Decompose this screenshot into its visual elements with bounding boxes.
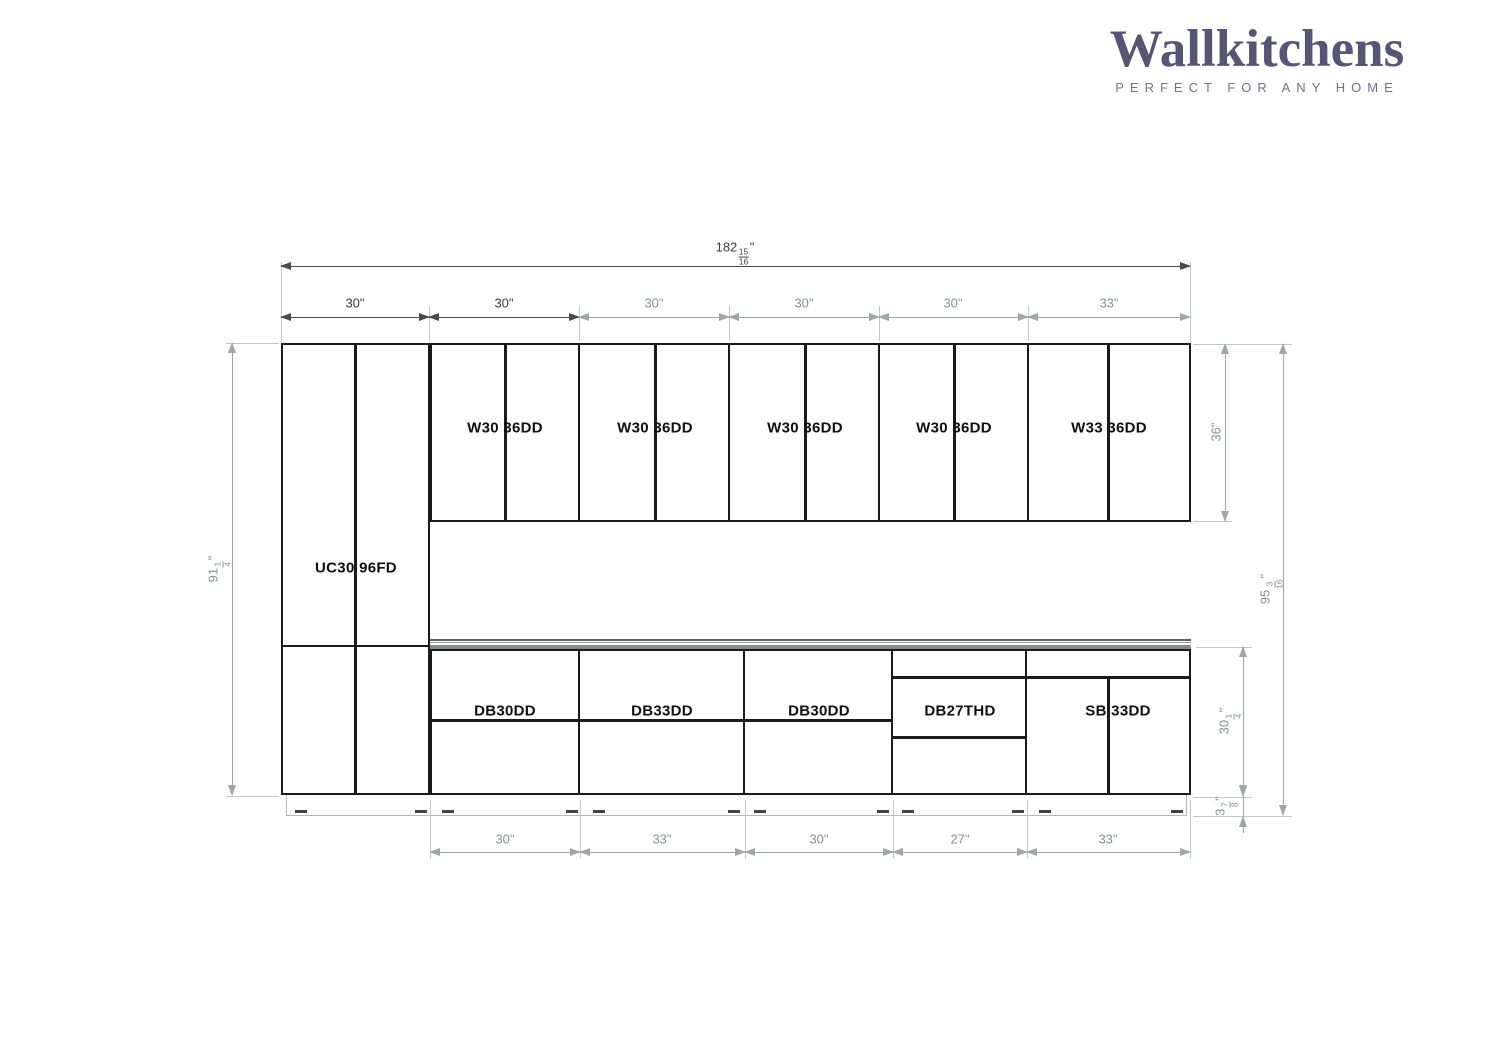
cabinet-label-base-1: DB30DD [474,703,536,720]
base-cabinet-db27thd [891,649,1027,795]
dim-label-wall-height: 36" [1209,422,1224,441]
dim-label-base-5: 33" [1098,832,1117,847]
brand-tagline: PERFECT FOR ANY HOME [1077,80,1437,95]
dim-line-wall-height [1225,344,1226,521]
dim-label-left-height: 9114" [206,556,233,583]
dim-line-base-27 [893,852,1027,853]
dim-line-base-30-1 [430,852,580,853]
countertop-edge [430,639,1191,641]
dim-label-total-height: 95316" [1258,574,1285,605]
dim-label-wall-5: 33" [1099,296,1118,311]
dim-line-wall-30-4 [879,317,1028,318]
dim-line-tall-30 [281,317,429,318]
leveler-foot [1171,810,1183,813]
leveler-foot [728,810,740,813]
dim-label-base-1: 30" [495,832,514,847]
dim-label-wall-1: 30" [494,296,513,311]
extension-line [579,306,580,341]
cabinet-label-tall: UC30 96FD [315,560,397,577]
dim-label-wall-4: 30" [943,296,962,311]
dim-label-base-3: 30" [809,832,828,847]
cabinet-label-wall-5: W33 36DD [1071,420,1147,437]
dim-line-wall-30-2 [579,317,729,318]
dim-label-base-2: 33" [652,832,671,847]
base-cabinet-db30-1 [430,649,580,795]
cabinet-label-wall-1: W30 36DD [467,420,543,437]
leveler-foot [593,810,605,813]
kitchen-elevation-drawing: { "brand": { "name": "Wallkitchens", "ta… [0,0,1500,1061]
dim-line-wall-30-3 [729,317,879,318]
extension-line [1190,262,1191,341]
toe-kick [286,795,1187,816]
sink-base-door-divider [1107,678,1110,793]
extension-line [1028,306,1029,341]
cabinet-label-wall-4: W30 36DD [916,420,992,437]
brand-name: Wallkitchens [1077,22,1437,78]
extension-line [1193,344,1292,345]
tall-cabinet-counter-line [283,645,428,647]
drawer-divider-line [893,736,1025,739]
dim-line-wall-30-1 [429,317,579,318]
extension-line [879,306,880,341]
dim-label-tall-width: 30" [345,296,364,311]
leveler-foot [442,810,454,813]
dim-label-wall-2: 30" [644,296,663,311]
dim-arrow [1239,786,1247,797]
extension-line [281,262,282,341]
dim-line-base-33 [580,852,745,853]
dim-label-base-height: 3014" [1217,708,1244,735]
leveler-foot [902,810,914,813]
cabinet-label-base-3: DB30DD [788,703,850,720]
cabinet-label-base-4: DB27THD [924,703,995,720]
leveler-foot [295,810,307,813]
countertop-line [430,642,1191,643]
dim-line-base-33-2 [1027,852,1190,853]
cabinet-label-base-2: DB33DD [631,703,693,720]
extension-line [429,306,430,341]
cabinet-label-base-5: SB 33DD [1085,703,1150,720]
leveler-foot [754,810,766,813]
extension-line [729,306,730,341]
dim-label-total-width: 1821516" [716,240,755,267]
base-cabinet-db33 [578,649,745,795]
brand-logo: Wallkitchens PERFECT FOR ANY HOME [1077,22,1437,95]
dim-label-base-4: 27" [950,832,969,847]
dim-arrow [1239,816,1247,827]
leveler-foot [566,810,578,813]
cabinet-label-wall-2: W30 36DD [617,420,693,437]
dim-label-wall-3: 30" [794,296,813,311]
base-cabinet-db30-2 [743,649,893,795]
cabinet-label-wall-3: W30 36DD [767,420,843,437]
dim-line-base-30-2 [745,852,893,853]
leveler-foot [415,810,427,813]
dim-line-wall-33 [1028,317,1190,318]
extension-line [226,796,279,797]
drawer-divider-line [893,676,1025,679]
leveler-foot [1012,810,1024,813]
leveler-foot [1039,810,1051,813]
leveler-foot [877,810,889,813]
dim-label-toe-kick: 378" [1213,796,1240,816]
